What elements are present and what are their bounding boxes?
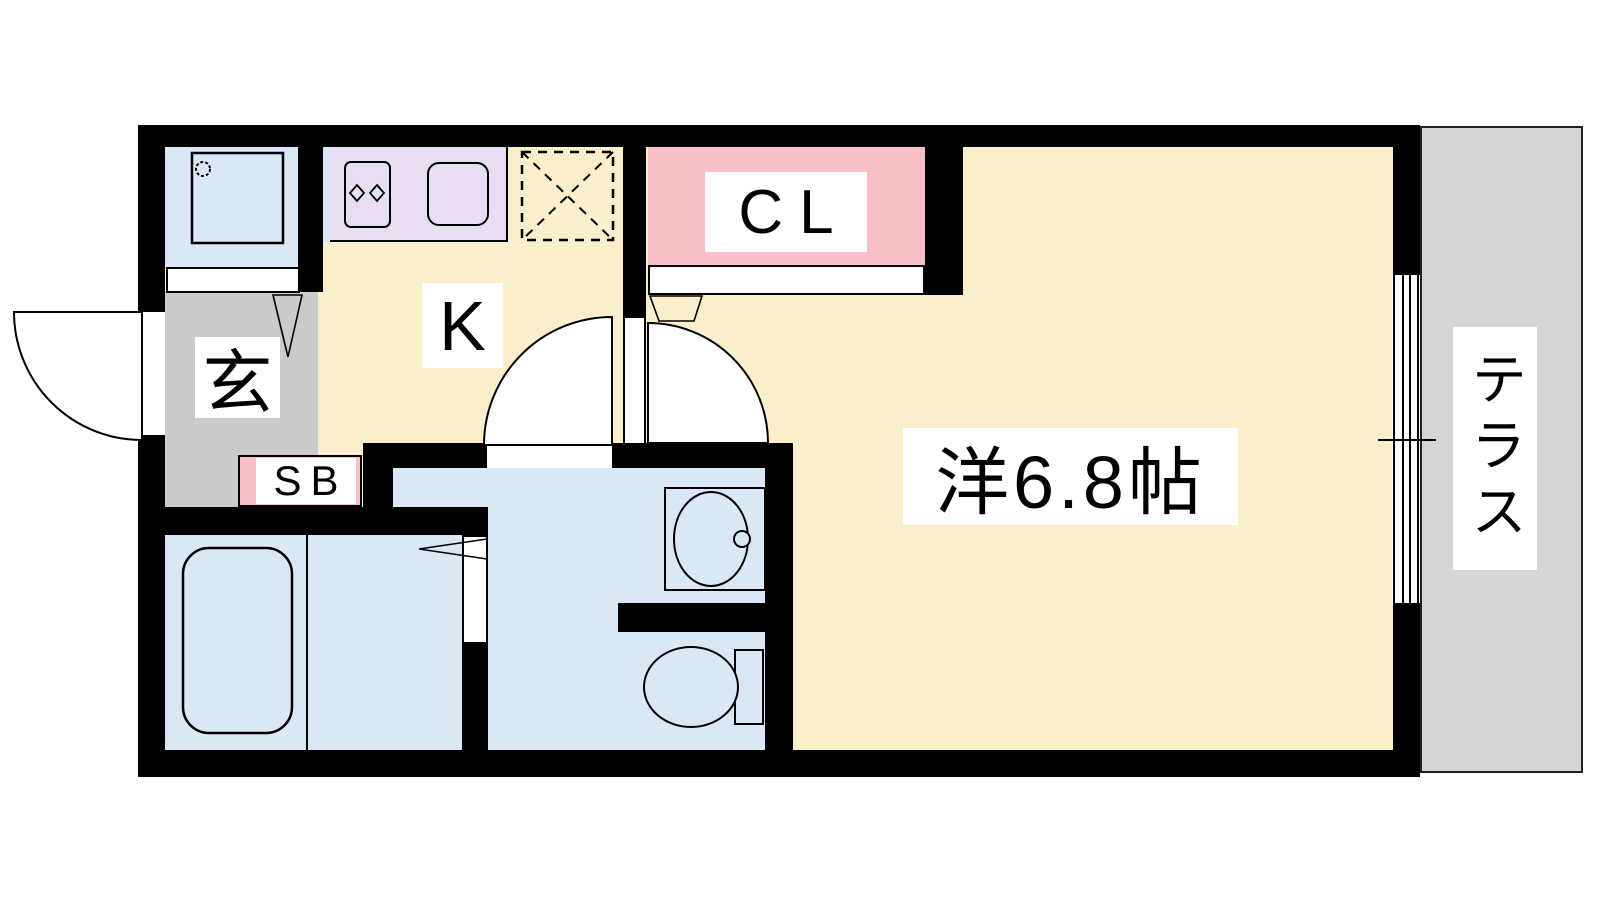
bathtub-icon [183,535,307,750]
kitchen-sink-icon [428,163,488,225]
kitchen-label-text: K [439,286,486,366]
kitchen-label: K [422,283,503,368]
mainroom-door-swing [648,323,768,443]
entrance-door-swing [14,312,142,440]
western-room-label-text: 洋6.8帖 [935,423,1206,530]
terrace-label-text: テラス [1455,350,1536,548]
entrance-label: 玄 [195,337,280,418]
stove-icon [345,162,390,227]
wash-basin-icon [665,488,765,590]
closet-door-swing-mark [650,296,702,321]
toilet-icon [644,647,763,727]
terrace-label: テラス [1453,327,1537,570]
refrigerator-space-icon [522,152,613,240]
shoe-box-label: SB [256,458,356,504]
washroom-door-swing [484,317,612,445]
closet-label-text: CL [722,177,849,248]
entrance-label-text: 玄 [203,327,273,428]
linework-layer [0,0,1600,900]
floorplan-canvas: 玄 K CL SB 洋6.8帖 テラス [0,0,1600,900]
bath-door-swing-mark [419,539,487,559]
sliding-window-icon [1378,275,1436,603]
closet-label: CL [705,172,867,252]
western-room-label: 洋6.8帖 [903,428,1238,525]
washing-machine-icon [192,153,283,243]
shoe-box-label-text: SB [264,457,347,505]
